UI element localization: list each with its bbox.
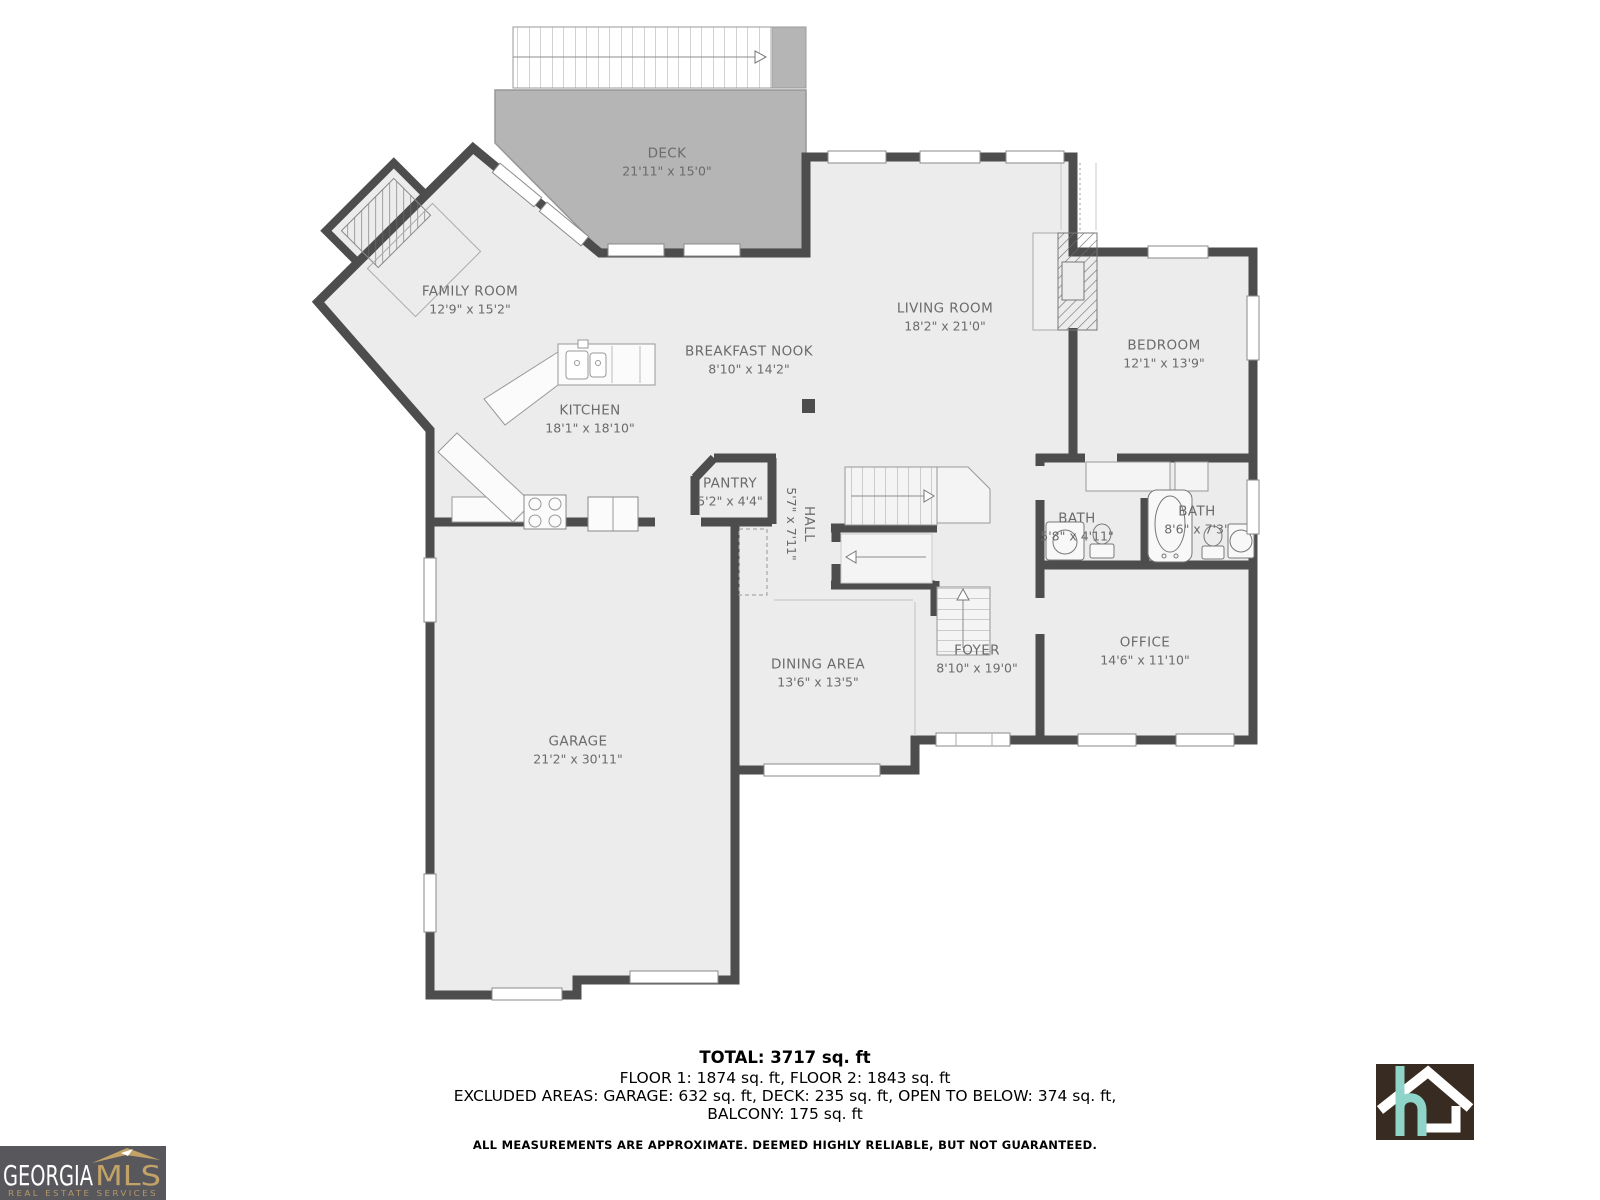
floor-plan-drawing <box>0 0 1600 1200</box>
bath1-toilet <box>1090 544 1114 558</box>
excluded-areas: EXCLUDED AREAS: GARAGE: 632 sq. ft, DECK… <box>0 1088 1570 1106</box>
total-area: TOTAL: 3717 sq. ft <box>0 1048 1570 1067</box>
room-label-garage: GARAGE 21'2" x 30'11" <box>533 733 622 767</box>
room-label-kitchen: KITCHEN 18'1" x 18'10" <box>545 402 634 436</box>
bath2-toilet <box>1202 546 1224 559</box>
house-outline <box>318 148 1253 995</box>
mls-name-primary: GEORGIA <box>3 1159 93 1192</box>
room-label-family-room: FAMILY ROOM 12'9" x 15'2" <box>422 283 518 317</box>
room-label-living-room: LIVING ROOM 18'2" x 21'0" <box>897 300 993 334</box>
mls-name-secondary: MLS <box>95 1159 161 1192</box>
balcony-area: BALCONY: 175 sq. ft <box>0 1106 1570 1124</box>
room-label-hall: HALL 5'7" x 7'11" <box>783 487 817 560</box>
room-label-office: OFFICE 14'6" x 11'10" <box>1100 634 1189 668</box>
front-door <box>936 733 1010 746</box>
room-label-breakfast-nook: BREAKFAST NOOK 8'10" x 14'2" <box>685 343 813 377</box>
room-label-dining-area: DINING AREA 13'6" x 13'5" <box>771 656 865 690</box>
deck-stairs <box>513 27 806 88</box>
room-label-bath-2: BATH 8'6" x 7'3" <box>1164 503 1230 537</box>
georgia-mls-logo: GEORGIA MLS REAL ESTATE SERVICES <box>0 1146 166 1200</box>
room-label-bedroom: BEDROOM 12'1" x 13'9" <box>1123 337 1204 371</box>
home-logo <box>1376 1064 1474 1140</box>
column <box>802 399 815 413</box>
summary-footer: TOTAL: 3717 sq. ft FLOOR 1: 1874 sq. ft,… <box>0 1048 1570 1152</box>
room-label-bath-1: BATH 5'8" x 4'11" <box>1040 510 1113 544</box>
floor-areas: FLOOR 1: 1874 sq. ft, FLOOR 2: 1843 sq. … <box>0 1070 1570 1088</box>
mls-tagline: REAL ESTATE SERVICES <box>8 1189 158 1198</box>
floor-plan-page: DECK 21'11" x 15'0" FAMILY ROOM 12'9" x … <box>0 0 1600 1200</box>
disclaimer: ALL MEASUREMENTS ARE APPROXIMATE. DEEMED… <box>0 1138 1570 1152</box>
closets <box>1086 462 1208 491</box>
room-label-foyer: FOYER 8'10" x 19'0" <box>936 642 1017 676</box>
room-label-deck: DECK 21'11" x 15'0" <box>622 145 711 179</box>
room-label-pantry: PANTRY 5'2" x 4'4" <box>697 475 763 509</box>
